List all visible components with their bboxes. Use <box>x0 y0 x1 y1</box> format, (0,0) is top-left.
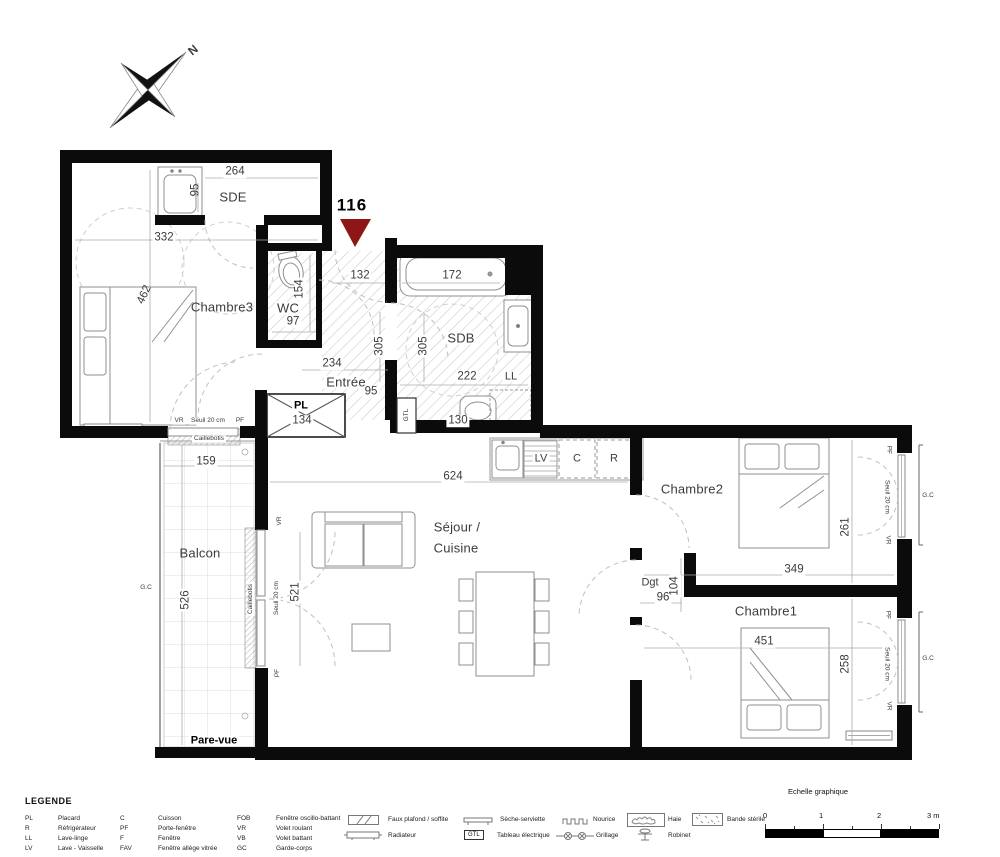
scale-tick-3: 3 m <box>927 812 940 820</box>
legend-abbr-lv: LV <box>25 846 32 853</box>
dim-chambre3-width: 332 <box>152 232 175 244</box>
scale-bar-segment <box>823 829 881 838</box>
legend-abbr-pl: PL <box>25 816 33 823</box>
dim-sde-depth: 95 <box>190 184 202 197</box>
room-label-entree: Entrée <box>324 376 368 389</box>
legend-abbr-fob: FOB <box>237 816 250 823</box>
compass-rose <box>110 52 186 128</box>
legend-label-garde-corps: Garde-corps <box>276 846 312 853</box>
closet-label-pl: PL <box>292 401 310 412</box>
dim-sdb-depth: 305 <box>418 334 430 357</box>
appliance-label-ll: LL <box>503 372 519 383</box>
legend-label-porte-fenetre: Porte-fenêtre <box>158 826 196 833</box>
vr-label-window1: VR <box>885 701 892 710</box>
legend-label-volet-roulant: Volet roulant <box>276 826 312 833</box>
scale-bar-segment <box>881 829 939 838</box>
seuil-label-top: Seuil 20 cm <box>189 418 227 425</box>
room-label-sejour-line2: Cuisine <box>434 542 479 555</box>
caillebotis-label-top: Caillebotis <box>192 436 226 443</box>
legend-label-placard: Placard <box>58 816 80 823</box>
legend-label-cuisson: Cuisson <box>158 816 181 823</box>
unit-entrance-marker <box>340 219 371 247</box>
legend-label-bande-sterile: Bande stérile <box>727 817 765 824</box>
legend-label-lave-vaisselle: Lave - Vaisselle <box>58 846 103 853</box>
dim-sejour-width: 624 <box>441 471 464 483</box>
legend-label-oscillo: Fenêtre oscillo-battant <box>276 816 340 823</box>
legend-abbr-ll: LL <box>25 836 32 843</box>
pf-label-top: PF <box>234 418 246 425</box>
faux-plafond-icon <box>348 815 380 826</box>
legend-label-nourice: Nourice <box>593 817 615 824</box>
grillage-icon <box>556 830 594 842</box>
pf-label-window1: PF <box>884 611 891 619</box>
legend-label-volet-battant: Volet battant <box>276 836 312 843</box>
legend-label-lave-linge: Lave-linge <box>58 836 88 843</box>
robinet-icon <box>636 828 654 842</box>
unit-number: 116 <box>337 197 367 214</box>
appliance-label-cuisson: C <box>573 454 581 465</box>
gc-label-window1: G.C <box>922 656 934 663</box>
seche-serviette-icon <box>463 816 495 826</box>
dim-dgt-depth: 104 <box>669 574 681 597</box>
seuil-label-door: Seuil 20 cm <box>274 579 281 617</box>
dim-balcon-depth: 526 <box>180 588 192 611</box>
vr-label-window2: VR <box>884 535 891 544</box>
dim-entree-depth: 95 <box>363 386 380 398</box>
room-label-sejour-line1: Séjour / <box>434 521 480 534</box>
pf-label-window2: PF <box>885 446 892 454</box>
room-label-sde: SDE <box>219 191 246 204</box>
room-label-sdb: SDB <box>445 332 476 345</box>
dim-wc-width: 97 <box>285 316 302 328</box>
dim-hall-depth: 305 <box>374 334 386 357</box>
gc-label-balcon: G.C <box>140 585 152 592</box>
haie-icon <box>627 813 665 827</box>
room-label-chambre1: Chambre1 <box>735 605 797 618</box>
room-label-dgt: Dgt <box>639 578 660 589</box>
dim-chambre2-width: 349 <box>782 564 805 576</box>
room-label-chambre3: Chambre3 <box>191 301 253 314</box>
gtl-legend-box: GTL <box>464 830 484 840</box>
dim-baignoire: 172 <box>440 270 463 282</box>
dim-wc-depth: 154 <box>294 277 306 300</box>
legend-label-seche-serviette: Sèche-serviette <box>500 817 545 824</box>
caillebotis-label-door: Caillebotis <box>248 582 255 616</box>
dim-chambre1-width: 451 <box>752 636 775 648</box>
legend-abbr-r: R <box>25 826 30 833</box>
legend-label-faux-plafond: Faux plafond / soffite <box>388 817 448 824</box>
scale-tick-mark <box>939 824 940 829</box>
seuil-label-window1: Seuil 20 cm <box>883 645 890 683</box>
dim-sdb-width: 222 <box>455 371 478 383</box>
dim-sde-width: 264 <box>223 166 246 178</box>
floor-plan-page: N 116 Chambre3 SDE WC SDB Entrée Séjour … <box>0 0 1000 857</box>
dim-chambre2-depth: 261 <box>840 517 852 536</box>
legend-abbr-c: C <box>120 816 125 823</box>
legend-label-fenetre-allege: Fenêtre allège vitrée <box>158 846 217 853</box>
legend-abbr-fav: FAV <box>120 846 132 853</box>
legend-title: LEGENDE <box>25 797 72 806</box>
gtl-label: GTL <box>403 409 410 422</box>
dim-baie-sejour: 521 <box>290 580 302 603</box>
scale-bar-segment <box>765 829 823 838</box>
room-label-wc: WC <box>275 302 301 315</box>
dim-entree-width: 234 <box>320 358 343 370</box>
legend-label-refrigerateur: Réfrigérateur <box>58 826 96 833</box>
scale-tick-2: 2 <box>877 812 881 820</box>
dim-placard-width: 134 <box>290 415 313 427</box>
dim-balcon-width: 159 <box>194 456 217 468</box>
vr-label-top: VR <box>172 418 185 425</box>
scale-tick-0: 0 <box>763 812 767 820</box>
dim-entree-top: 132 <box>348 270 371 282</box>
room-label-chambre2: Chambre2 <box>661 483 723 496</box>
legend-label-grillage: Grillage <box>596 833 618 840</box>
legend-abbr-f: F <box>120 836 124 843</box>
legend-abbr-gc: GC <box>237 846 247 853</box>
dim-chambre1-depth: 258 <box>840 654 852 673</box>
legend-label-fenetre: Fenêtre <box>158 836 180 843</box>
nourice-icon <box>562 815 590 826</box>
scale-title: Echelle graphique <box>788 788 848 796</box>
legend-label-haie: Haie <box>668 817 681 824</box>
pf-label-door: PF <box>275 669 282 677</box>
legend-label-tableau-electrique: Tableau électrique <box>497 833 550 840</box>
gc-label-window2: G.C <box>922 493 934 500</box>
bande-sterile-icon <box>692 813 724 826</box>
radiateur-icon <box>344 830 382 842</box>
scale-tick-1: 1 <box>819 812 823 820</box>
legend-abbr-pf: PF <box>120 826 128 833</box>
vr-label-door: VR <box>277 516 284 525</box>
legend-label-robinet: Robinet <box>668 833 690 840</box>
legend-abbr-vb: VB <box>237 836 246 843</box>
legend-label-radiateur: Radiateur <box>388 833 416 840</box>
legend-abbr-vr: VR <box>237 826 246 833</box>
room-label-balcon: Balcon <box>180 547 221 560</box>
appliance-label-refrigerateur: R <box>610 454 618 465</box>
dim-sdb-bottom: 130 <box>446 415 469 427</box>
appliance-label-lv: LV <box>533 454 550 465</box>
pare-vue-label: Pare-vue <box>189 736 239 747</box>
seuil-label-window2: Seuil 20 cm <box>883 478 890 516</box>
